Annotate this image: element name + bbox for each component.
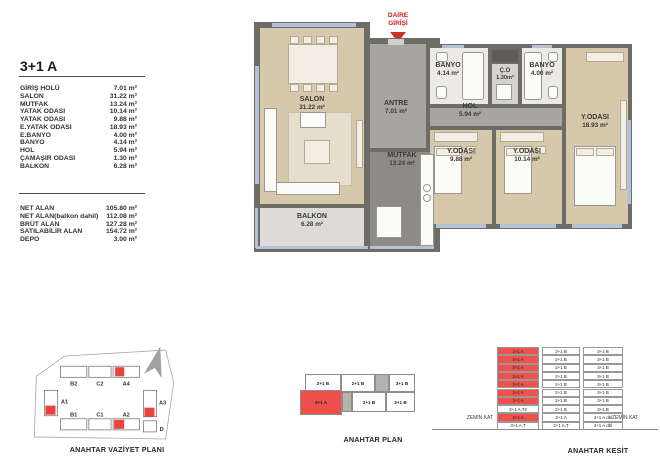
window [627,120,631,204]
tv-unit [356,120,363,168]
building-label: B1 [70,413,77,419]
window [370,246,434,249]
window [532,45,552,48]
building-label: A1 [61,400,68,406]
room-area-value: 18.93 m² [110,124,137,132]
closet [434,132,478,142]
section-cell: 2+1 B [542,372,580,380]
key-unit: 3+1 B [389,374,415,392]
total-label: NET ALAN [20,205,54,213]
list-item: ÇAMAŞIR ODASI1.30 m² [20,155,137,163]
ground-line [432,429,658,430]
window [572,224,622,228]
pillow [576,148,594,156]
window [272,23,356,27]
entrance-label-line1: DAİRE [376,12,420,20]
balcony-rail [255,208,258,248]
sofa [264,108,277,192]
building-label: C2 [96,381,103,387]
chair [303,84,312,92]
total-item: NET ALAN(balkon dahil)112.08 m² [20,213,137,221]
section-caption: ANAHTAR KESİT [553,446,643,455]
section-cell: 3+1 B [583,347,623,355]
total-value: 112.08 m² [106,213,137,221]
total-item: SATILABİLİR ALAN154.72 m² [20,228,137,236]
room-area-value: 4.00 m² [114,132,137,140]
pillow [596,148,614,156]
building-d [143,421,156,432]
highlight-unit [45,406,55,415]
section-cell: 3+1 B [583,380,623,388]
unit-title: 3+1 A [20,58,150,74]
room-label: E.BANYO [20,132,51,140]
entry-door [388,39,404,45]
section-cell: 2+1 B [542,397,580,405]
section-cell: 3+1 A [497,380,539,388]
section-cell: 3+1 B [583,372,623,380]
list-item: YATAK ODASI10.14 m² [20,108,137,116]
label-antre: ANTRE 7.01 m² [370,100,422,116]
toilet [436,86,447,99]
key-plan-caption: ANAHTAR PLAN [338,435,408,444]
total-label: NET ALAN(balkon dahil) [20,213,98,221]
list-item: MUTFAK13.24 m² [20,101,137,109]
list-item: GİRİŞ HOLÜ7.01 m² [20,85,137,93]
divider [19,76,145,77]
label-balkon: BALKON 6.28 m² [282,213,342,229]
window [500,224,556,228]
key-unit-highlighted: 3+1 A [300,390,342,415]
room-area-value: 13.24 m² [110,101,137,109]
section-cell: 2+1 A [542,413,580,421]
label-banyo-414: BANYO 4.14 m² [428,62,468,78]
site-plan: B2 C2 A4 A1 A3 B1 C1 A2 D [28,346,180,442]
key-unit: 3+1 B [386,392,415,412]
label-salon: SALON 31.22 m² [282,96,342,112]
label-yatak-988: Y.ODASI 9.88 m² [432,148,490,164]
key-unit: 2+1 B [341,374,375,392]
building-b2 [61,366,87,377]
section-cell: 3+1 A.T2 [497,405,539,413]
room-label: YATAK ODASI [20,116,65,124]
ground-floor-label-right: ZEMİN KAT [612,415,656,421]
building-label: B2 [70,381,77,387]
chair [290,84,299,92]
room-label: BANYO [20,139,45,147]
section-cell: 3+1 B [583,364,623,372]
window [436,224,486,228]
chair [316,84,325,92]
list-item: HOL5.94 m² [20,147,137,155]
highlight-unit [144,408,154,417]
elevator-core [342,392,352,412]
room-area-value: 9.88 m² [114,116,137,124]
total-item: NET ALAN105.80 m² [20,205,137,213]
section-cell: 2+1 B [542,364,580,372]
washbasin [548,52,558,62]
chair [303,36,312,44]
section-cell: 3+1 A [497,347,539,355]
list-item: E.YATAK ODASI18.93 m² [20,124,137,132]
section-cell: 2+1 B [542,355,580,363]
sink [423,194,431,202]
room-antre [370,44,426,148]
list-item: BALKON6.28 m² [20,163,137,171]
washing-machine [496,84,512,100]
room-area-value: 4.14 m² [114,139,137,147]
room-area-value: 6.28 m² [114,163,137,171]
building-c1 [89,419,111,430]
chair [329,36,338,44]
total-value: 154.72 m² [106,228,137,236]
chair [316,36,325,44]
highlight-unit [115,367,124,376]
section-cell: 3+1 B [583,405,623,413]
section-cell: 2+1 B [542,347,580,355]
building-label: A4 [123,381,131,387]
section-cell: 3+1 A [497,364,539,372]
section-cell: 2+1 B [542,405,580,413]
toilet [548,86,558,99]
sofa [276,182,340,195]
total-label: DEPO [20,236,39,244]
total-label: SATILABİLİR ALAN [20,228,82,236]
section-cell: 3+1 B [583,397,623,405]
building-label: C1 [96,413,103,419]
balcony-rail [256,246,368,249]
room-label: GİRİŞ HOLÜ [20,85,60,93]
plan-sheet: 3+1 A GİRİŞ HOLÜ7.01 m² SALON31.22 m² MU… [0,0,660,466]
room-label: MUTFAK [20,101,48,109]
highlight-unit [114,420,124,429]
label-mutfak: MUTFAK 13.24 m² [372,152,432,168]
kitchen-table [376,206,402,238]
room-area-value: 1.30 m² [114,155,137,163]
label-hol: HOL 5.94 m² [444,103,496,119]
armchair [300,112,326,128]
window [442,45,464,48]
section-cell: 3+1 A [497,355,539,363]
total-item: DEPO3.00 m² [20,236,137,244]
label-yatak-1014: Y.ODASI 10.14 m² [496,148,558,164]
building-label: A2 [123,413,130,419]
section-cell: 3+1 B [583,389,623,397]
room-area-value: 10.14 m² [110,108,137,116]
section-cell: 3+1 A [497,372,539,380]
section-cell: 3+1 A [497,389,539,397]
building-label: D [160,427,164,433]
room-area-value: 7.01 m² [114,85,137,93]
building-c2 [89,366,111,377]
list-item: BANYO4.14 m² [20,139,137,147]
shaft [492,50,518,62]
ground-floor-label-left: ZEMİN KAT [437,415,493,421]
room-label: ÇAMAŞIR ODASI [20,155,75,163]
room-label: BALKON [20,163,49,171]
chair [290,36,299,44]
dining-table [288,44,338,84]
room-label: SALON [20,93,44,101]
sink [423,184,431,192]
room-label: HOL [20,147,34,155]
entrance-label-line2: GİRİŞİ [376,20,420,28]
building-label: A3 [159,401,166,407]
totals-list: NET ALAN105.80 m² NET ALAN(balkon dahil)… [20,205,137,244]
chair [329,84,338,92]
section-cell: 2+1 B [542,380,580,388]
section-cell: 3+1 A [497,413,539,421]
elevator-core [375,374,389,392]
room-label: E.YATAK ODASI [20,124,72,132]
total-value: 127.28 m² [106,221,137,229]
washbasin [436,52,448,62]
label-yatak-1893: Y.ODASI 18.93 m² [564,114,626,130]
list-item: E.BANYO4.00 m² [20,132,137,140]
label-banyo-400: BANYO 4.00 m² [520,62,564,78]
section-cell: 3+1 B [583,355,623,363]
key-unit: 2+1 B [352,392,386,412]
total-value: 105.80 m² [106,205,137,213]
closet [586,52,624,62]
list-item: SALON31.22 m² [20,93,137,101]
closet [500,132,544,142]
window [255,66,259,184]
room-area-value: 31.22 m² [110,93,137,101]
building-b1 [61,419,87,430]
total-value: 3.00 m² [114,236,137,244]
coffee-table [304,140,330,164]
list-item: YATAK ODASI9.88 m² [20,116,137,124]
room-label: YATAK ODASI [20,108,65,116]
section-cell: 3+1 A [497,397,539,405]
label-camasir-odasi: Ç.O 1.30m² [488,68,522,82]
divider [19,193,145,194]
section-cell: 2+1 B [542,389,580,397]
site-plan-caption: ANAHTAR VAZİYET PLANI [58,445,176,454]
room-area-value: 5.94 m² [114,147,137,155]
entrance-label: DAİRE GİRİŞİ [376,12,420,28]
room-area-list: GİRİŞ HOLÜ7.01 m² SALON31.22 m² MUTFAK13… [20,85,137,170]
